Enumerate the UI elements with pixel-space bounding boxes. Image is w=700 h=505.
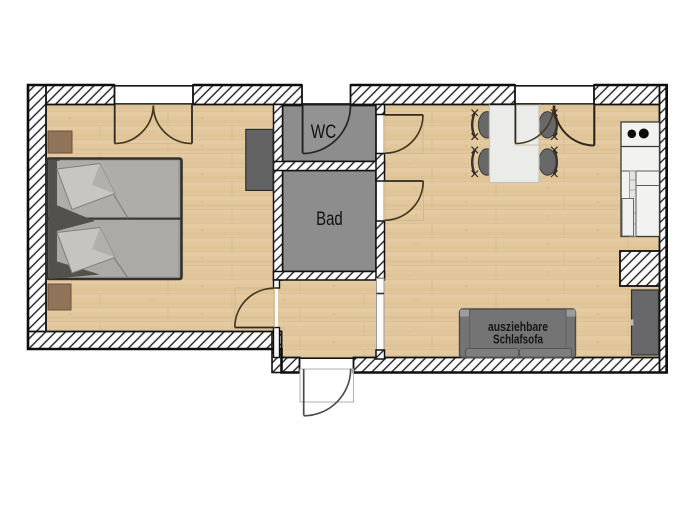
svg-text:Schlafsofa: Schlafsofa	[493, 332, 544, 347]
svg-text:WC: WC	[311, 121, 337, 143]
svg-text:Bad: Bad	[316, 208, 343, 230]
